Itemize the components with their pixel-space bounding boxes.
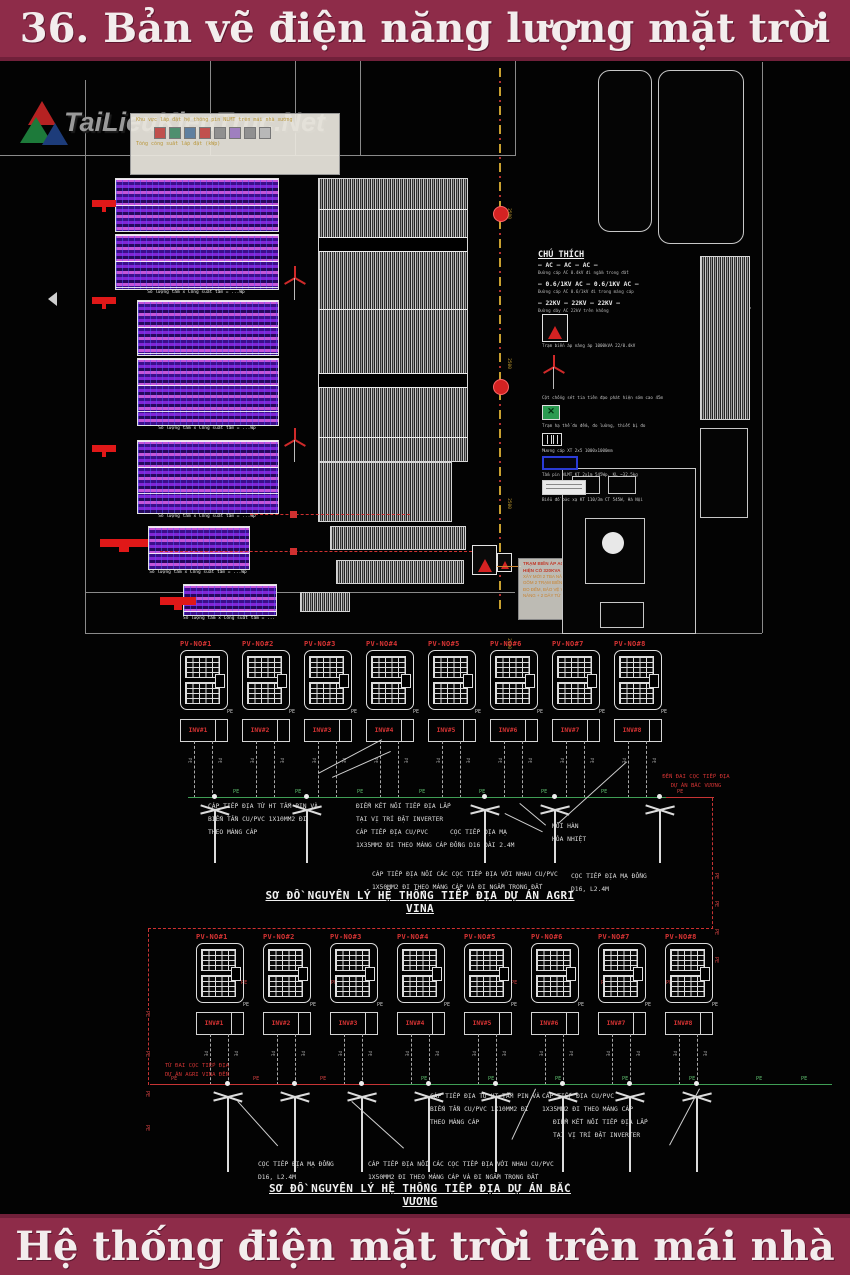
ground-wire bbox=[563, 1034, 564, 1085]
inverter-box: INV#4 bbox=[397, 1012, 445, 1035]
pe-label: PE bbox=[599, 709, 605, 715]
pe-label: PE bbox=[701, 1051, 706, 1057]
pv-unit: PV-NO#1 PE INV#1 PE PE bbox=[180, 640, 230, 800]
pe-label: PE bbox=[444, 1002, 450, 1008]
pe-label: PE bbox=[310, 758, 315, 764]
annotation: MỐI HÀNHÓA NHIỆT bbox=[552, 820, 586, 846]
pv-unit: PV-NO#5 PE INV#5 PE PE bbox=[464, 933, 514, 1093]
ground-wire bbox=[442, 741, 443, 798]
pe-label: PE bbox=[496, 758, 501, 764]
ground-wire bbox=[362, 1034, 363, 1085]
pe-label: PE bbox=[671, 1051, 676, 1057]
pe-label: PE bbox=[634, 1051, 639, 1057]
inverter-label: INV#5 bbox=[429, 720, 464, 741]
hatched-building bbox=[700, 256, 750, 420]
pe-label: PE bbox=[144, 1010, 150, 1018]
land-parcel bbox=[598, 70, 652, 232]
annotation: ĐIỂM KẾT NỐI TIẾP ĐỊA LẮPTẠI VỊ TRÍ ĐẶT … bbox=[553, 1116, 648, 1142]
ground-wire bbox=[646, 741, 647, 798]
annotation: ĐẾN ĐAI CỌC TIẾP ĐỊADỰ ÁN BẮC VƯƠNG bbox=[648, 773, 744, 791]
inverter-box: INV#1 bbox=[180, 719, 228, 742]
tank-circle bbox=[602, 532, 624, 554]
mv-pole-icon bbox=[493, 379, 509, 395]
inverter-box: INV#7 bbox=[552, 719, 600, 742]
color-swatch-row bbox=[154, 127, 334, 139]
pe-label: PE bbox=[336, 1051, 341, 1057]
pe-label: PE bbox=[755, 1076, 763, 1082]
hatched-strip bbox=[300, 592, 350, 612]
pe-label: PE bbox=[269, 1051, 274, 1057]
ground-wire bbox=[628, 741, 629, 798]
color-swatch bbox=[184, 127, 196, 139]
pe-label: PE bbox=[588, 758, 593, 764]
inverter-label: INV#6 bbox=[491, 720, 526, 741]
ground-wire bbox=[545, 1034, 546, 1085]
pv-panel-icon bbox=[428, 650, 476, 710]
pv-unit-label: PV-NO#1 bbox=[196, 933, 246, 941]
annotation: TỪ ĐAI CỌC TIẾP ĐỊADỰ ÁN AGRI VINA ĐẾN bbox=[152, 1062, 242, 1080]
pv-unit-label: PV-NO#5 bbox=[428, 640, 478, 648]
building-outline bbox=[608, 476, 636, 494]
inverter-label: INV#2 bbox=[243, 720, 278, 741]
pv-panel-icon bbox=[490, 650, 538, 710]
info-box: Khu vực lắp đặt hệ thống pin NLMT trên m… bbox=[130, 113, 340, 175]
pv-array-block bbox=[115, 234, 279, 290]
annotation: CÁP TIẾP ĐỊA TỪ HT TẤM PIN VÀBIẾN TẦN CU… bbox=[430, 1090, 540, 1129]
ground-link-cable bbox=[148, 928, 714, 929]
pe-label: PE bbox=[511, 1002, 517, 1008]
pe-label: PE bbox=[202, 1051, 207, 1057]
pe-label: PE bbox=[248, 758, 253, 764]
inverter-box: INV#3 bbox=[330, 1012, 378, 1035]
inverter-box: INV#8 bbox=[614, 719, 662, 742]
hatched-building bbox=[318, 178, 468, 462]
pe-label: PE bbox=[470, 1051, 475, 1057]
ground-wire bbox=[318, 741, 319, 798]
pv-unit: PV-NO#6 PE INV#6 PE PE bbox=[531, 933, 581, 1093]
pv-unit: PV-NO#3 PE INV#3 PE PE bbox=[330, 933, 380, 1093]
pv-panel-icon bbox=[665, 943, 713, 1003]
pv-array-block bbox=[137, 300, 279, 356]
legend-caption: Đường dây AC 22kV trên không bbox=[538, 308, 639, 313]
pv-array-block bbox=[148, 526, 250, 570]
ground-wire bbox=[344, 1034, 345, 1085]
inverter-label: INV#7 bbox=[599, 1013, 634, 1034]
pv-unit: PV-NO#7 PE INV#7 PE PE bbox=[552, 640, 602, 800]
dc-cable-run bbox=[250, 514, 410, 515]
pe-label: PE bbox=[232, 1051, 237, 1057]
ground-wire bbox=[697, 1034, 698, 1085]
pe-label: PE bbox=[418, 789, 426, 795]
pe-label: PE bbox=[366, 1051, 371, 1057]
inverter-box: INV#7 bbox=[598, 1012, 646, 1035]
pe-label: PE bbox=[278, 758, 283, 764]
pv-panel-symbol-icon bbox=[542, 456, 578, 470]
pe-label: PE bbox=[540, 789, 548, 795]
pv-array-block bbox=[115, 178, 279, 232]
pe-label: PE bbox=[310, 1002, 316, 1008]
inverter-box: INV#8 bbox=[665, 1012, 713, 1035]
ground-wire bbox=[504, 741, 505, 798]
inverter-label: INV#6 bbox=[532, 1013, 567, 1034]
red-marker-icon bbox=[92, 297, 116, 304]
ground-wire bbox=[679, 1034, 680, 1085]
dimension-label: 2500 bbox=[506, 498, 511, 509]
annotation: CÁP TIẾP ĐỊA NỐI CÁC CỌC TIẾP ĐỊA VỚI NH… bbox=[368, 1158, 554, 1184]
cad-canvas: TaiLieuKienTruc.Net Khu vực lắp đặt hệ t… bbox=[0, 61, 850, 1214]
dimension-label: 2500 bbox=[506, 358, 511, 369]
pv-panel-icon bbox=[304, 650, 352, 710]
pv-block-caption: Số lượng tấm x Công suất tấm = ...Wp bbox=[148, 570, 248, 575]
ground-wire bbox=[496, 1034, 497, 1085]
color-swatch bbox=[154, 127, 166, 139]
red-marker-icon bbox=[160, 597, 196, 605]
color-swatch bbox=[169, 127, 181, 139]
pe-label: PE bbox=[252, 1076, 260, 1082]
inverter-label: INV#3 bbox=[331, 1013, 366, 1034]
pe-label: PE bbox=[351, 709, 357, 715]
frame-line bbox=[360, 61, 361, 155]
pv-unit-label: PV-NO#8 bbox=[614, 640, 664, 648]
ground-wire bbox=[630, 1034, 631, 1085]
ground-wire bbox=[274, 741, 275, 798]
transformer-icon bbox=[472, 545, 497, 575]
inverter-label: INV#1 bbox=[181, 720, 216, 741]
ground-wire bbox=[478, 1034, 479, 1085]
lightning-mast-icon bbox=[283, 264, 307, 302]
pv-unit-label: PV-NO#1 bbox=[180, 640, 230, 648]
ground-wire bbox=[411, 1034, 412, 1085]
inverter-label: INV#2 bbox=[264, 1013, 299, 1034]
site-boundary-right bbox=[762, 62, 763, 633]
pe-label: PE bbox=[558, 758, 563, 764]
pe-label: PE bbox=[433, 1051, 438, 1057]
pe-label: PE bbox=[645, 1002, 651, 1008]
pv-panel-icon bbox=[552, 650, 600, 710]
pe-label: PE bbox=[289, 709, 295, 715]
pe-label: PE bbox=[712, 1002, 718, 1008]
inverter-box: INV#2 bbox=[263, 1012, 311, 1035]
pe-label: PE bbox=[403, 1051, 408, 1057]
color-swatch bbox=[229, 127, 241, 139]
transformer-icon bbox=[497, 553, 512, 572]
legend-line-sample: — AC — AC — AC — bbox=[538, 262, 639, 269]
ground-wire bbox=[584, 741, 585, 798]
pe-label: PE bbox=[661, 709, 667, 715]
schematic-title: SƠ ĐỒ NGUYÊN LÝ HỆ THỐNG TIẾP ĐỊA DỰ ÁN … bbox=[260, 889, 580, 915]
metering-station-icon: ✕ bbox=[542, 405, 560, 420]
inverter-box: INV#5 bbox=[464, 1012, 512, 1035]
pv-unit-label: PV-NO#2 bbox=[263, 933, 313, 941]
red-marker-icon bbox=[92, 445, 116, 452]
ground-wire bbox=[295, 1034, 296, 1085]
ground-wire bbox=[398, 741, 399, 798]
ground-wire bbox=[522, 741, 523, 798]
legend-caption: Đường cáp AC 0.4kV đi ngầm trong đất bbox=[538, 270, 639, 275]
annotation: CÁP TIẾP ĐỊA CU/PVC1X35MM2 ĐI THEO MÁNG … bbox=[542, 1090, 633, 1116]
hatched-building bbox=[318, 462, 452, 522]
ground-link-cable bbox=[148, 929, 149, 1085]
inverter-label: INV#3 bbox=[305, 720, 340, 741]
pv-block-caption: Số lượng tấm x Công suất tấm = ...Wp bbox=[183, 616, 275, 621]
ground-wire bbox=[429, 1034, 430, 1085]
pe-label: PE bbox=[413, 709, 419, 715]
pv-unit: PV-NO#5 PE INV#5 PE PE bbox=[428, 640, 478, 800]
lightning-mast-icon bbox=[283, 426, 307, 464]
legend-line-sample: — 22KV — 22KV — 22KV — bbox=[538, 300, 639, 307]
info-line: Khu vực lắp đặt hệ thống pin NLMT trên m… bbox=[136, 117, 334, 124]
inverter-label: INV#5 bbox=[465, 1013, 500, 1034]
pe-label: PE bbox=[537, 1051, 542, 1057]
pe-label: PE bbox=[526, 758, 531, 764]
pe-label: PE bbox=[650, 758, 655, 764]
annotation: CỌC TIẾP ĐỊA MẠ ĐỒNGD16, L2.4M bbox=[258, 1158, 334, 1184]
legend-cables: — AC — AC — AC — Đường cáp AC 0.4kV đi n… bbox=[538, 262, 639, 319]
annotation: CÁP TIẾP ĐỊA TỪ HT TẤM PIN VÀBIẾN TẦN CU… bbox=[208, 800, 318, 839]
pv-array-block bbox=[137, 440, 279, 514]
pv-array-block bbox=[183, 584, 277, 616]
inverter-box: INV#3 bbox=[304, 719, 352, 742]
pv-unit: PV-NO#6 PE INV#6 PE PE bbox=[490, 640, 540, 800]
inverter-box: INV#5 bbox=[428, 719, 476, 742]
pe-label: PE bbox=[500, 1051, 505, 1057]
pv-block-caption: Số lượng tấm x Công suất tấm = ...Wp bbox=[115, 290, 277, 295]
cable-node bbox=[290, 548, 297, 555]
pv-unit-label: PV-NO#5 bbox=[464, 933, 514, 941]
pe-label: PE bbox=[464, 758, 469, 764]
page-title: 36. Bản vẽ điện năng lượng mặt trời bbox=[20, 5, 830, 52]
color-swatch bbox=[259, 127, 271, 139]
pv-unit-label: PV-NO#6 bbox=[531, 933, 581, 941]
red-marker-icon bbox=[92, 200, 116, 207]
ground-link-cable bbox=[712, 798, 713, 929]
pe-label: PE bbox=[377, 1002, 383, 1008]
hatched-strip bbox=[330, 526, 466, 550]
inverter-box: INV#2 bbox=[242, 719, 290, 742]
top-banner: 36. Bản vẽ điện năng lượng mặt trời bbox=[0, 0, 850, 61]
inverter-box: INV#4 bbox=[366, 719, 414, 742]
lightning-mast-icon bbox=[542, 353, 566, 391]
pe-label: PE bbox=[475, 709, 481, 715]
cable-node bbox=[290, 511, 297, 518]
pe-label: PE bbox=[402, 758, 407, 764]
inverter-label: INV#1 bbox=[197, 1013, 232, 1034]
pv-panel-icon bbox=[196, 943, 244, 1003]
pe-label: PE bbox=[186, 758, 191, 764]
pv-unit: PV-NO#2 PE INV#2 PE PE bbox=[263, 933, 313, 1093]
pv-unit-label: PV-NO#4 bbox=[366, 640, 416, 648]
pv-block-caption: Số lượng tấm x Công suất tấm = ...Wp bbox=[137, 426, 277, 431]
building-outline bbox=[700, 428, 748, 518]
pv-unit-label: PV-NO#7 bbox=[552, 640, 602, 648]
pv-unit: PV-NO#2 PE INV#2 PE PE bbox=[242, 640, 292, 800]
pe-label: PE bbox=[537, 709, 543, 715]
color-swatch bbox=[214, 127, 226, 139]
annotation: CỌC TIẾP ĐỊA MẠĐỒNG D16 DÀI 2.4M bbox=[450, 826, 514, 852]
schematic-title: SƠ ĐỒ NGUYÊN LÝ HỆ THỐNG TIẾP ĐỊA DỰ ÁN … bbox=[250, 1182, 590, 1208]
ground-wire bbox=[336, 741, 337, 798]
pe-label: PE bbox=[434, 758, 439, 764]
pv-unit-label: PV-NO#7 bbox=[598, 933, 648, 941]
pe-label: PE bbox=[227, 709, 233, 715]
pv-panel-icon bbox=[180, 650, 228, 710]
ground-wire bbox=[460, 741, 461, 798]
ground-wire bbox=[194, 741, 195, 798]
legend-entry: — 0.6/1KV AC — 0.6/1KV AC — Đường cáp AC… bbox=[538, 281, 639, 294]
ground-wire bbox=[380, 741, 381, 798]
pv-panel-icon bbox=[614, 650, 662, 710]
pe-label: PE bbox=[319, 1076, 327, 1082]
arrow-left-icon bbox=[48, 292, 57, 306]
pv-unit: PV-NO#8 PE INV#8 PE PE bbox=[665, 933, 715, 1093]
pv-panel-icon bbox=[397, 943, 445, 1003]
inverter-label: INV#4 bbox=[367, 720, 402, 741]
pv-unit: PV-NO#7 PE INV#7 PE PE bbox=[598, 933, 648, 1093]
page: 36. Bản vẽ điện năng lượng mặt trời TaiL… bbox=[0, 0, 850, 1275]
pv-panel-icon bbox=[531, 943, 579, 1003]
pv-unit-label: PV-NO#8 bbox=[665, 933, 715, 941]
dc-cable-run bbox=[160, 551, 472, 552]
pv-unit-label: PV-NO#6 bbox=[490, 640, 540, 648]
inverter-box: INV#1 bbox=[196, 1012, 244, 1035]
pv-unit: PV-NO#3 PE INV#3 PE PE bbox=[304, 640, 354, 800]
legend-title: CHÚ THÍCH bbox=[538, 250, 584, 260]
frame-line bbox=[515, 61, 516, 155]
building-outline bbox=[600, 602, 644, 628]
pe-label: PE bbox=[800, 1076, 808, 1082]
pe-label: PE bbox=[243, 1002, 249, 1008]
ground-wire bbox=[612, 1034, 613, 1085]
pv-panel-icon bbox=[366, 650, 414, 710]
pe-label: PE bbox=[600, 789, 608, 795]
pv-unit-label: PV-NO#3 bbox=[304, 640, 354, 648]
pv-unit-label: PV-NO#2 bbox=[242, 640, 292, 648]
pe-label: PE bbox=[567, 1051, 572, 1057]
inverter-box: INV#6 bbox=[531, 1012, 579, 1035]
pv-panel-icon bbox=[464, 943, 512, 1003]
inverter-box: INV#6 bbox=[490, 719, 538, 742]
color-swatch bbox=[199, 127, 211, 139]
land-parcel bbox=[658, 70, 744, 244]
pe-label: PE bbox=[232, 789, 240, 795]
mv-line-22kv bbox=[499, 68, 501, 613]
dimension-label: 2500 bbox=[506, 208, 511, 219]
pe-label: PE bbox=[713, 900, 719, 908]
red-marker-icon bbox=[100, 539, 148, 547]
pv-panel-icon bbox=[242, 650, 290, 710]
inverter-label: INV#4 bbox=[398, 1013, 433, 1034]
ground-wire bbox=[566, 741, 567, 798]
inverter-label: INV#8 bbox=[666, 1013, 701, 1034]
pe-label: PE bbox=[604, 1051, 609, 1057]
ground-wire bbox=[277, 1034, 278, 1085]
pe-label: PE bbox=[294, 789, 302, 795]
pv-unit: PV-NO#4 PE INV#4 PE PE bbox=[397, 933, 447, 1093]
inverter-label: INV#7 bbox=[553, 720, 588, 741]
legend-line-sample: — 0.6/1KV AC — 0.6/1KV AC — bbox=[538, 281, 639, 288]
pe-label: PE bbox=[356, 789, 364, 795]
annotation: CỌC TIẾP ĐỊA MẠ ĐỒNGD16, L2.4M bbox=[571, 870, 647, 896]
pe-label: PE bbox=[144, 1050, 150, 1058]
pv-array-block bbox=[137, 358, 279, 426]
color-swatch bbox=[244, 127, 256, 139]
info-line: Tổng công suất lắp đặt (kWp) bbox=[136, 141, 334, 148]
pe-label: PE bbox=[299, 1051, 304, 1057]
cable-trench-icon bbox=[542, 433, 562, 446]
pe-label: PE bbox=[713, 872, 719, 880]
meter-box-icon bbox=[542, 480, 586, 495]
site-boundary-left bbox=[85, 80, 86, 633]
pe-label: PE bbox=[578, 1002, 584, 1008]
legend-caption: Đường cáp AC 0.6/1kV đi trong máng cáp bbox=[538, 289, 639, 294]
pe-label: PE bbox=[216, 758, 221, 764]
pv-panel-icon bbox=[263, 943, 311, 1003]
pv-unit-label: PV-NO#4 bbox=[397, 933, 447, 941]
transformer-symbol-icon bbox=[542, 314, 568, 342]
inverter-label: INV#8 bbox=[615, 720, 650, 741]
legend-entry: — AC — AC — AC — Đường cáp AC 0.4kV đi n… bbox=[538, 262, 639, 275]
ground-wire bbox=[256, 741, 257, 798]
bottom-banner: Hệ thống điện mặt trời trên mái nhà bbox=[0, 1214, 850, 1275]
legend-entry: — 22KV — 22KV — 22KV — Đường dây AC 22kV… bbox=[538, 300, 639, 313]
pv-unit-label: PV-NO#3 bbox=[330, 933, 380, 941]
footer-title: Hệ thống điện mặt trời trên mái nhà bbox=[15, 1223, 834, 1270]
annotation: ĐIỂM KẾT NỐI TIẾP ĐỊA LẮPTẠI VỊ TRÍ ĐẶT … bbox=[356, 800, 451, 852]
pv-panel-icon bbox=[598, 943, 646, 1003]
hatched-strip bbox=[336, 560, 464, 584]
ground-wire bbox=[212, 741, 213, 798]
pv-panel-icon bbox=[330, 943, 378, 1003]
pv-unit: PV-NO#4 PE INV#4 PE PE bbox=[366, 640, 416, 800]
